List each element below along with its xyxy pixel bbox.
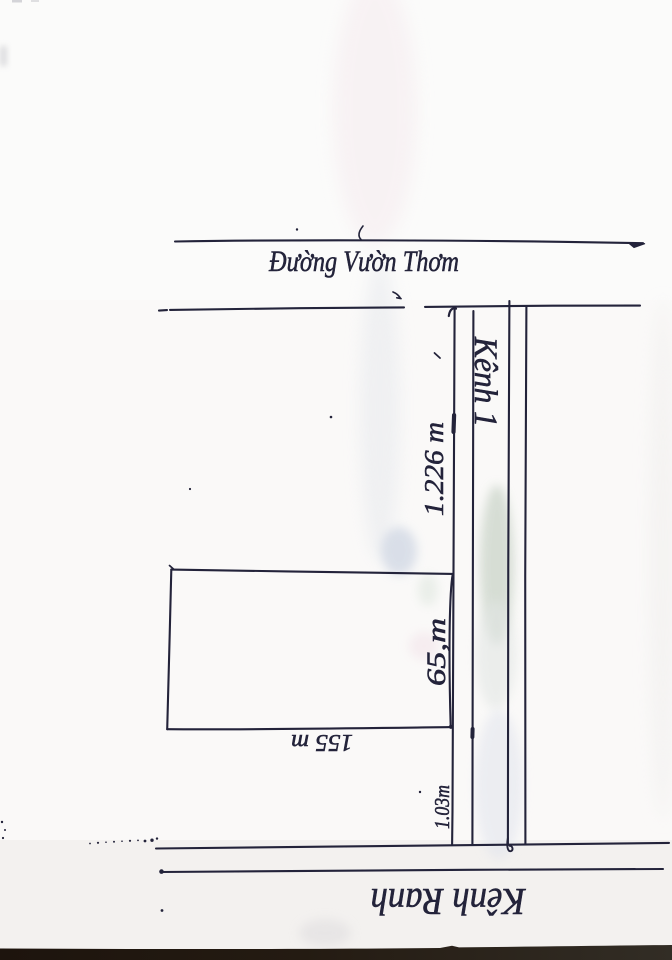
svg-text:Kênh Ranh: Kênh Ranh: [371, 880, 527, 922]
svg-text:1.03m: 1.03m: [430, 785, 454, 829]
svg-text:65,m: 65,m: [422, 618, 451, 686]
svg-text:Kênh 1: Kênh 1: [467, 336, 503, 427]
svg-text:155 m: 155 m: [291, 729, 353, 755]
svg-text:Đường Vườn Thơm: Đường Vườn Thơm: [268, 245, 459, 278]
svg-text:1.226 m: 1.226 m: [419, 422, 449, 516]
